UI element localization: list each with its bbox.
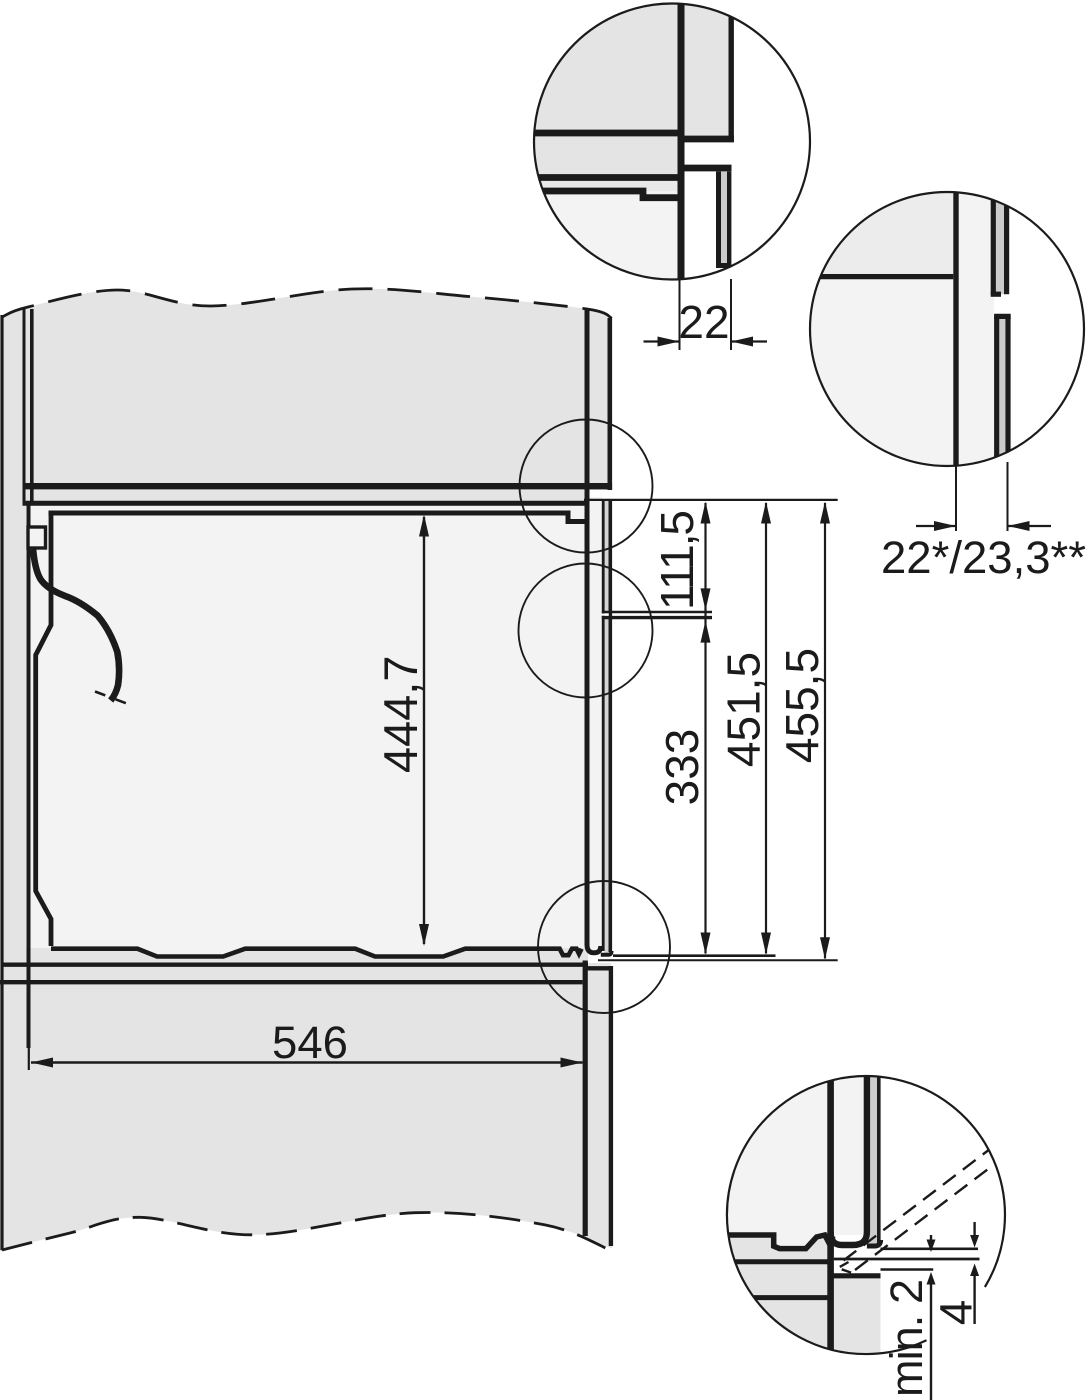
svg-text:451,5: 451,5 bbox=[718, 652, 770, 767]
svg-text:22: 22 bbox=[678, 296, 729, 348]
svg-text:min. 2: min. 2 bbox=[881, 1279, 932, 1397]
svg-text:4: 4 bbox=[931, 1300, 982, 1325]
svg-text:22*/23,3**: 22*/23,3** bbox=[881, 532, 1086, 583]
svg-text:546: 546 bbox=[272, 1017, 348, 1068]
svg-text:444,7: 444,7 bbox=[374, 655, 427, 773]
svg-text:455,5: 455,5 bbox=[776, 648, 828, 763]
svg-text:333: 333 bbox=[656, 729, 708, 806]
svg-text:111,5: 111,5 bbox=[651, 510, 703, 610]
